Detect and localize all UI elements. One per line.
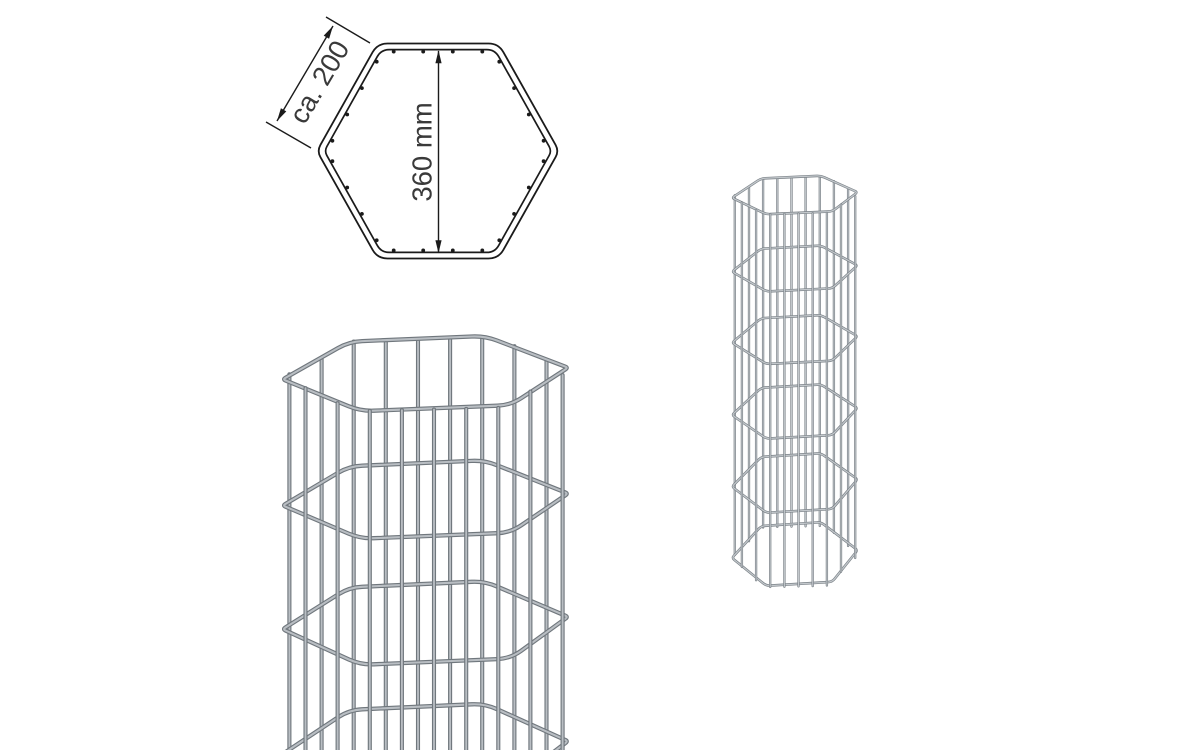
svg-text:360 mm: 360 mm: [407, 102, 438, 201]
